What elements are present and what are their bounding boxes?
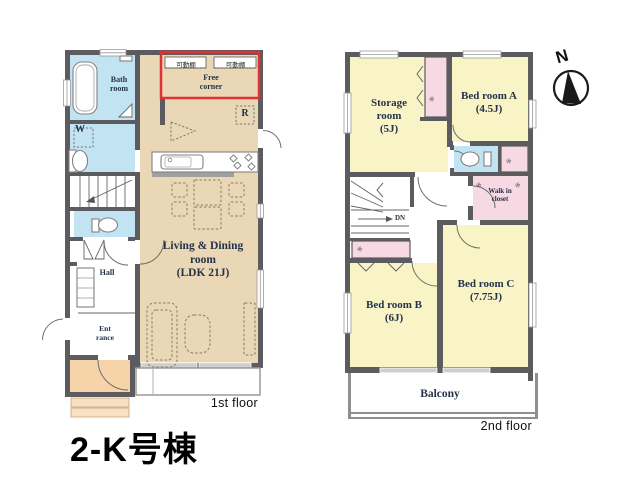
laundry-label: W	[72, 124, 88, 136]
movable-shelf-right-label: 可動棚	[215, 59, 256, 69]
toilet-2f	[461, 152, 491, 166]
porch-fill	[70, 360, 130, 392]
porch-steps	[71, 398, 129, 417]
building-title: 2-K号棟	[70, 422, 198, 471]
floor2-caption: 2nd floor	[468, 419, 532, 433]
movable-shelf-left-label: 可動棚	[166, 59, 206, 69]
floor1-caption: 1st floor	[198, 396, 258, 410]
bedroom-b-label: Bed room B (6J)	[350, 299, 438, 325]
floorplan-drawing: ※ ※ ※ ※ ※	[0, 0, 640, 480]
wash-basin	[69, 150, 88, 172]
walkin-closet-label: Walk in closet	[477, 187, 523, 204]
bedroom-a-label: Bed room A (4.5J)	[446, 90, 532, 116]
toilet-1f	[92, 218, 118, 232]
entrance-label: Ent rance	[87, 325, 123, 343]
down-label: DN	[395, 214, 415, 222]
tall-closet-fill	[425, 57, 447, 117]
floorplan-page: ※ ※ ※ ※ ※ Bath room W Hall Ent rance Liv…	[0, 0, 640, 480]
balcony-label: Balcony	[398, 388, 482, 402]
bedroom-c-label: Bed room C (7.75J)	[442, 278, 530, 304]
floor1-plan	[43, 50, 282, 418]
living-dining-label: Living & Dining room (LDK 21J)	[143, 240, 263, 281]
stairs-1f	[70, 176, 135, 207]
closet-beside-toilet-fill	[501, 146, 528, 172]
hall-label: Hall	[90, 268, 124, 277]
bath-room-label: Bath room	[100, 75, 138, 94]
storage-room-label: Storage room (5J)	[352, 97, 426, 136]
compass	[554, 71, 588, 105]
refrigerator-label: R	[237, 108, 253, 120]
free-corner-label: Free corner	[185, 73, 237, 92]
terrace	[136, 368, 260, 395]
